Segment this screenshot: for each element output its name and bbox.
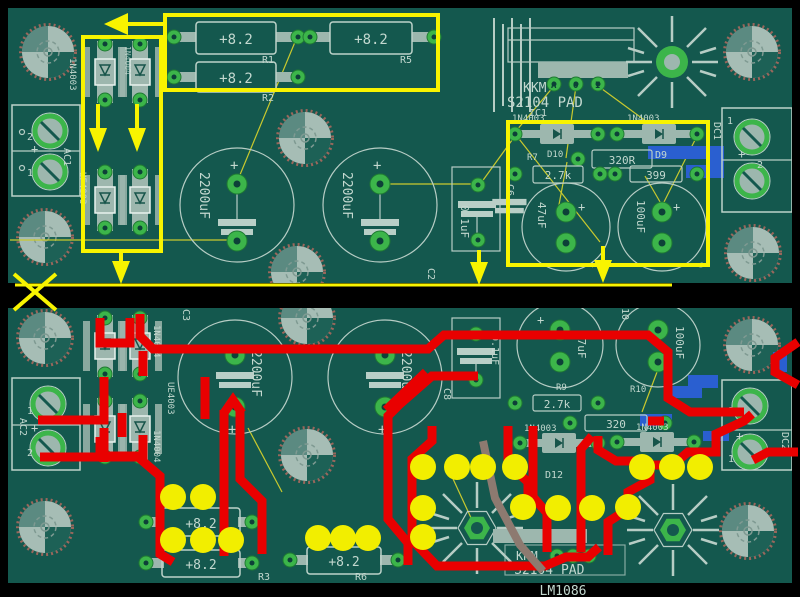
r6-ref: R6 (355, 572, 367, 583)
ic1-pin-o: O (573, 81, 579, 91)
top-board: 2 + 1 AC1 1N4003 UF4003 1N4004 +8.2 R1 +… (8, 8, 792, 300)
ac2-polarity: + (31, 421, 38, 435)
c100-value: 100uF (673, 326, 686, 359)
cap-value: 2200uF (196, 172, 211, 219)
c2-ref: C2 (425, 268, 436, 280)
r3-ref: R3 (258, 572, 270, 583)
c47-value: 47uF (535, 202, 548, 229)
dc1-pin-1: 1 (727, 116, 733, 127)
ac1-ref: AC1 (61, 148, 72, 166)
r320-value: 320 (606, 418, 626, 431)
ac1-polarity: + (31, 142, 38, 156)
c100-plus: + (673, 200, 680, 214)
d9-ref: D9 (655, 150, 667, 161)
r5-ref: R5 (400, 55, 412, 66)
ac1-pin-1: 1 (27, 168, 33, 179)
dc1-polarity: + (738, 147, 745, 161)
cap-value: 2200uF (248, 350, 263, 397)
ac2-pin-2: 2 (27, 448, 33, 459)
ic1-pin-a: A (551, 81, 557, 91)
film-cap-value: 0.1uF (458, 205, 471, 238)
dc2-polarity: + (736, 429, 743, 443)
r10-ref: R10 (630, 385, 646, 395)
ic1-brand: KKM (523, 81, 547, 96)
ac2-ref: AC2 (17, 418, 28, 436)
dc2-ref: DC2 (779, 432, 790, 450)
r-value: +8.2 (185, 558, 216, 573)
ic1-pin-i: I (595, 81, 600, 91)
diode-label-1n4003: 1N4003 (67, 58, 77, 91)
ac2-pin-1: 1 (27, 406, 33, 417)
r2-ref: R2 (262, 93, 274, 104)
r27k-value: 2.7k (544, 398, 571, 411)
c8-ref: C8 (441, 388, 452, 400)
r27k-value: 2.7k (545, 169, 572, 182)
c47-plus: + (578, 200, 585, 214)
c10-ref-partial: 10 (619, 308, 630, 320)
diode-pkg-1n4004b: 1N4004 (151, 430, 161, 463)
c100-value: 100uF (634, 200, 647, 233)
c3-ref: C3 (180, 309, 191, 321)
chip-caption: LM1086 (540, 584, 587, 597)
r1-ref: R1 (262, 55, 274, 66)
film-cap-value: 0.1uF (489, 335, 500, 365)
r-value: +8.2 (328, 555, 359, 570)
dc1-ref: DC1 (711, 122, 722, 140)
cap-plus: + (230, 158, 238, 174)
cap-plus: + (373, 158, 381, 174)
d12-ref: D12 (545, 470, 563, 481)
dc2-pin-1: 1 (728, 454, 734, 465)
diode-pkg-ue4003: UE4003 (165, 382, 175, 415)
r7-ref: R7 (527, 153, 538, 163)
c47-plus: + (537, 313, 544, 327)
r2-value: +8.2 (219, 71, 253, 87)
dc1-pin-2: 2 (757, 160, 763, 171)
r5-value: +8.2 (354, 32, 388, 48)
r399-value: 399 (646, 169, 666, 182)
cap-plus: + (228, 422, 236, 438)
r9-ref: R9 (556, 383, 567, 393)
diode-pkg-label: 1N4004 (123, 46, 132, 75)
d10-ref: D10 (547, 150, 563, 160)
r1-value: +8.2 (219, 32, 253, 48)
r320-value: 320R (609, 154, 636, 167)
pcb-layout-screenshot: 2 + 1 AC1 1N4003 UF4003 1N4004 +8.2 R1 +… (0, 0, 800, 597)
cap-value: 2200uF (339, 172, 354, 219)
